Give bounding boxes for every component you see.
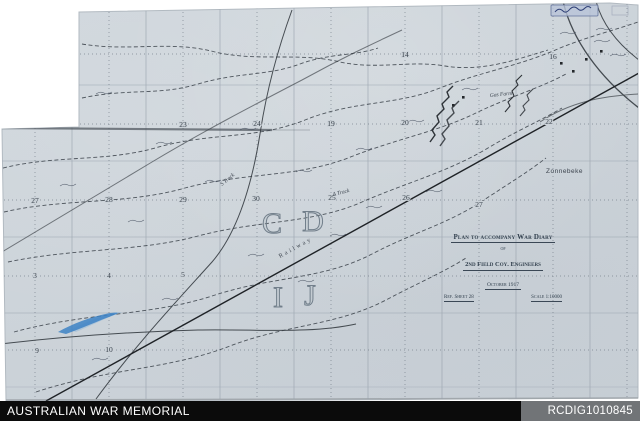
title-block-heading: Plan to accompany War Diary bbox=[451, 234, 554, 243]
place-label: Zonnebeke bbox=[546, 168, 583, 175]
registry-stamp bbox=[551, 5, 628, 16]
grid-number: 22 bbox=[545, 117, 553, 126]
paper-edge bbox=[2, 3, 638, 401]
grid-number: 28 bbox=[105, 195, 113, 204]
title-block-unit: 2nd Field Coy. Engineers bbox=[463, 262, 543, 271]
grid-number: 3 bbox=[33, 271, 37, 280]
grid-number: 16 bbox=[549, 52, 557, 61]
place-label: Gas Farm bbox=[490, 91, 513, 99]
grid-number: 4 bbox=[107, 271, 111, 280]
grid-number: 24 bbox=[253, 119, 261, 128]
title-block-ref: Ref. Sheet 28 bbox=[444, 295, 474, 302]
blue-water-patch bbox=[58, 312, 122, 334]
title-block-of: of bbox=[444, 246, 562, 252]
grid-number: 21 bbox=[475, 118, 483, 127]
grid-number: 9 bbox=[35, 346, 39, 355]
title-block-ref-scale: Ref. Sheet 28 Scale 1:10000 bbox=[444, 295, 562, 302]
grid-number: 5 bbox=[181, 270, 185, 279]
grid-number: 27 bbox=[31, 196, 39, 205]
grid-number: 20 bbox=[401, 118, 409, 127]
grid-number: 23 bbox=[179, 120, 187, 129]
grid-number: 14 bbox=[401, 50, 409, 59]
paper-bottom-shadow bbox=[6, 398, 638, 400]
grid-number: 29 bbox=[179, 195, 187, 204]
grid-number: 10 bbox=[105, 345, 113, 354]
road-lines bbox=[0, 1, 639, 399]
title-block: Plan to accompany War Diary of 2nd Field… bbox=[444, 227, 562, 302]
square-letter: I bbox=[273, 281, 283, 314]
title-block-date: October 1917 bbox=[485, 283, 521, 291]
grid-number: 27 bbox=[475, 200, 483, 209]
item-id: RCDIG1010845 bbox=[548, 405, 633, 417]
title-block-scale: Scale 1:10000 bbox=[531, 295, 562, 302]
paper-crease bbox=[0, 128, 310, 130]
item-id-box: RCDIG1010845 bbox=[521, 401, 640, 421]
archive-name: AUSTRALIAN WAR MEMORIAL bbox=[7, 404, 190, 418]
grid-number: 19 bbox=[327, 119, 335, 128]
square-letter: D bbox=[302, 205, 324, 238]
grid-number: 30 bbox=[252, 194, 260, 203]
scanned-map-record: CDIJ 14162324192021222728293025262734591… bbox=[0, 0, 640, 421]
map-drawing: CDIJ 14162324192021222728293025262734591… bbox=[0, 0, 640, 421]
square-letter: C bbox=[262, 207, 282, 240]
place-label: A Track bbox=[331, 188, 351, 198]
building-marks bbox=[452, 50, 603, 107]
grid-number: 26 bbox=[402, 193, 410, 202]
place-label: S Track bbox=[219, 172, 236, 188]
map-square-letters: CDIJ bbox=[262, 205, 324, 314]
square-letter: J bbox=[304, 279, 316, 312]
footer-bar: AUSTRALIAN WAR MEMORIAL RCDIG1010845 bbox=[0, 401, 640, 421]
